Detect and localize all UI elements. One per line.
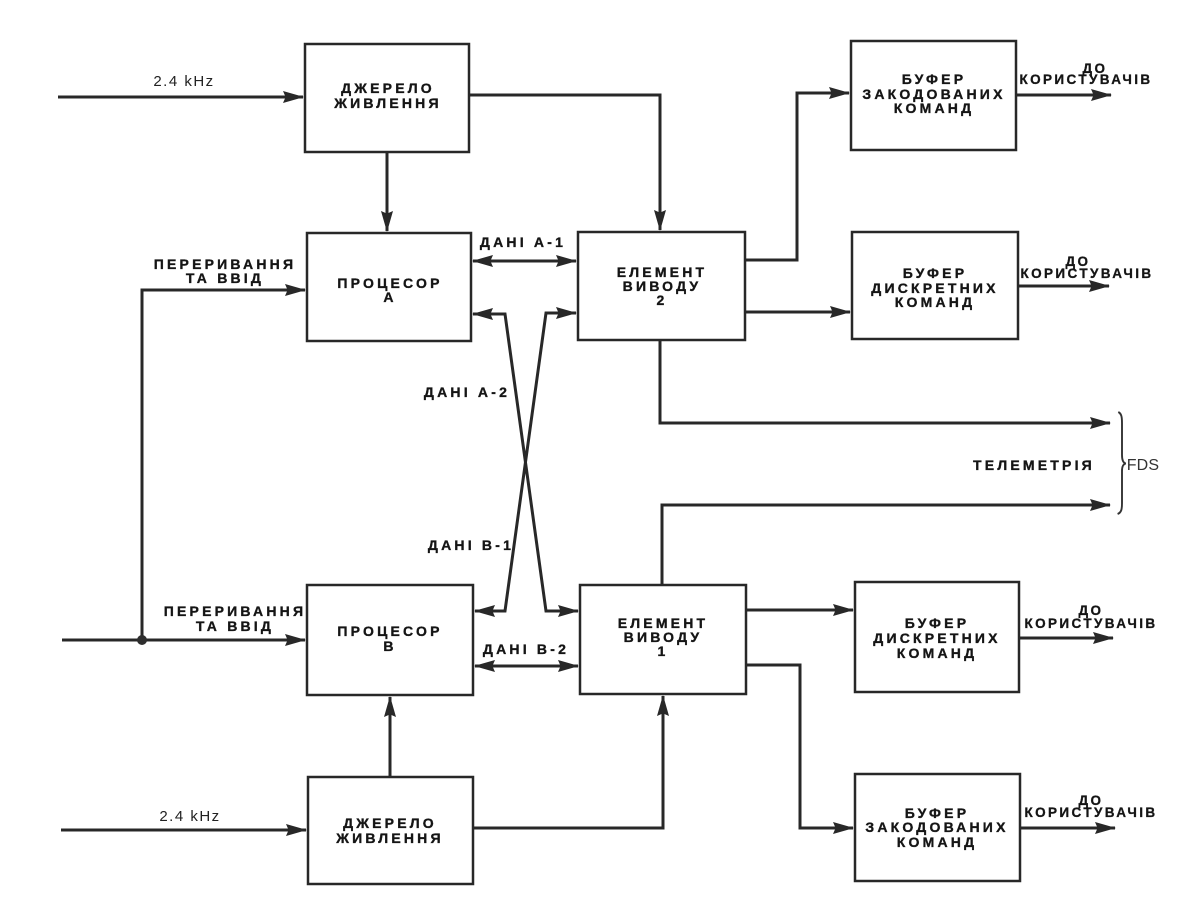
- svg-text:ДЖЕРЕЛО: ДЖЕРЕЛО: [343, 815, 437, 831]
- svg-text:1: 1: [658, 643, 669, 659]
- svg-text:КОРИСТУВАЧІВ: КОРИСТУВАЧІВ: [1024, 805, 1157, 820]
- svg-text:БУФЕР: БУФЕР: [902, 71, 967, 87]
- svg-text:FDS: FDS: [1127, 457, 1160, 474]
- svg-text:ЖИВЛЕННЯ: ЖИВЛЕННЯ: [333, 95, 442, 111]
- svg-text:ДИСКРЕТНИХ: ДИСКРЕТНИХ: [873, 630, 1000, 646]
- svg-text:КОМАНД: КОМАНД: [894, 100, 975, 116]
- svg-text:В: В: [383, 638, 396, 654]
- svg-text:ТА ВВІД: ТА ВВІД: [186, 270, 264, 286]
- svg-text:КОМАНД: КОМАНД: [897, 834, 978, 850]
- svg-text:КОМАНД: КОМАНД: [897, 645, 978, 661]
- svg-text:ТА ВВІД: ТА ВВІД: [196, 618, 274, 634]
- svg-text:КОРИСТУВАЧІВ: КОРИСТУВАЧІВ: [1020, 266, 1153, 281]
- svg-text:ТЕЛЕМЕТРІЯ: ТЕЛЕМЕТРІЯ: [973, 457, 1095, 473]
- svg-text:БУФЕР: БУФЕР: [905, 615, 970, 631]
- svg-text:ПЕРЕРИВАННЯ: ПЕРЕРИВАННЯ: [164, 603, 306, 619]
- svg-text:2.4 kHz: 2.4 kHz: [153, 73, 214, 90]
- svg-text:2: 2: [657, 292, 668, 308]
- svg-text:ЖИВЛЕННЯ: ЖИВЛЕННЯ: [335, 830, 444, 846]
- svg-text:ЗАКОДОВАНИХ: ЗАКОДОВАНИХ: [865, 819, 1008, 835]
- svg-text:А: А: [383, 289, 396, 305]
- svg-text:ПРОЦЕСОР: ПРОЦЕСОР: [337, 623, 442, 639]
- svg-text:ДЖЕРЕЛО: ДЖЕРЕЛО: [341, 80, 435, 96]
- svg-text:ДАНІ А-1: ДАНІ А-1: [480, 234, 566, 250]
- svg-text:ДАНІ В-2: ДАНІ В-2: [483, 641, 569, 657]
- svg-text:КОРИСТУВАЧІВ: КОРИСТУВАЧІВ: [1024, 616, 1157, 631]
- svg-text:БУФЕР: БУФЕР: [903, 265, 968, 281]
- svg-text:ДАНІ А-2: ДАНІ А-2: [424, 384, 510, 400]
- svg-text:2.4 kHz: 2.4 kHz: [159, 808, 220, 825]
- svg-text:ДАНІ В-1: ДАНІ В-1: [428, 537, 514, 553]
- svg-text:КОРИСТУВАЧІВ: КОРИСТУВАЧІВ: [1019, 72, 1152, 87]
- svg-text:КОМАНД: КОМАНД: [895, 294, 976, 310]
